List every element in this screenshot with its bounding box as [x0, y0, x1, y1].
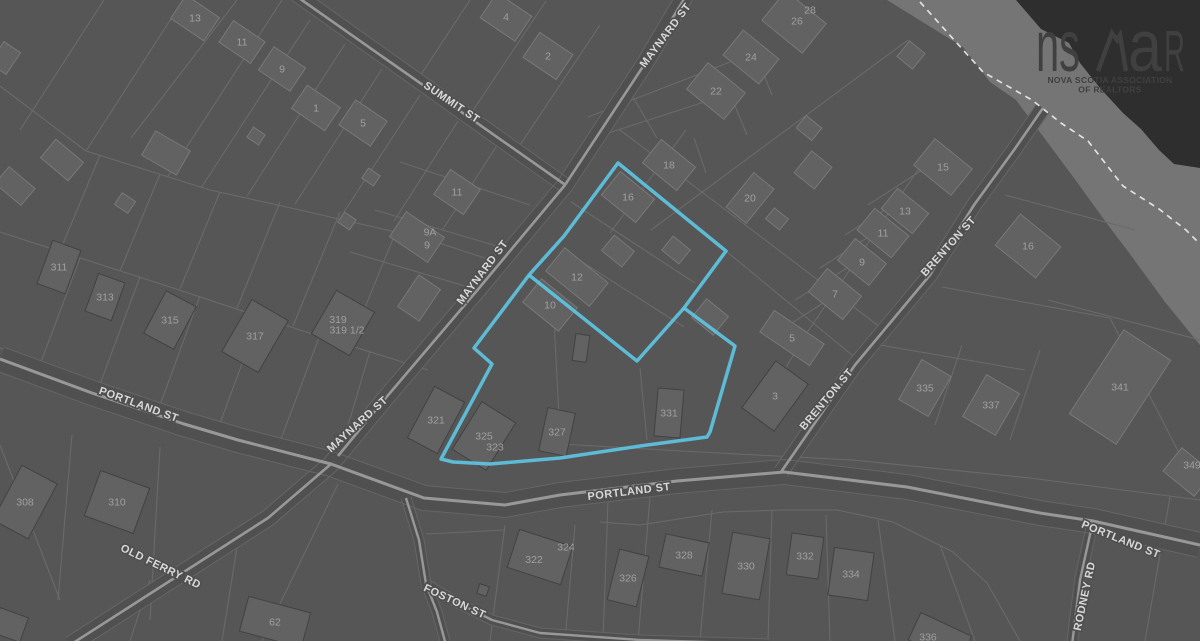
svg-text:9A: 9A — [424, 227, 437, 239]
svg-text:11: 11 — [237, 37, 248, 49]
svg-text:20: 20 — [744, 193, 756, 205]
svg-text:9: 9 — [859, 257, 865, 269]
svg-text:335: 335 — [916, 383, 934, 395]
svg-text:16: 16 — [622, 192, 634, 204]
svg-text:326: 326 — [619, 573, 637, 585]
svg-text:62: 62 — [269, 617, 281, 629]
svg-text:12: 12 — [571, 272, 583, 284]
svg-text:5: 5 — [360, 118, 366, 130]
svg-text:330: 330 — [737, 561, 755, 573]
svg-text:322: 322 — [525, 554, 543, 566]
svg-text:336: 336 — [919, 632, 937, 641]
svg-text:311: 311 — [51, 262, 68, 274]
svg-text:15: 15 — [937, 162, 949, 174]
svg-text:18: 18 — [663, 160, 675, 172]
svg-text:328: 328 — [675, 550, 693, 562]
svg-text:327: 327 — [548, 427, 566, 439]
svg-text:7: 7 — [832, 289, 838, 301]
svg-text:321: 321 — [427, 415, 445, 427]
svg-text:341: 341 — [1111, 382, 1129, 394]
svg-text:308: 308 — [16, 497, 34, 509]
svg-text:334: 334 — [842, 569, 860, 581]
svg-text:324: 324 — [557, 542, 575, 554]
svg-text:24: 24 — [745, 52, 757, 64]
svg-text:315: 315 — [161, 315, 179, 327]
svg-text:319 1/2: 319 1/2 — [329, 325, 364, 337]
svg-text:5: 5 — [789, 333, 795, 345]
svg-text:13: 13 — [899, 206, 911, 218]
svg-text:4: 4 — [503, 12, 509, 24]
svg-text:11: 11 — [878, 228, 889, 240]
svg-text:349: 349 — [1183, 460, 1200, 472]
svg-text:1: 1 — [313, 103, 319, 115]
svg-text:10: 10 — [544, 300, 556, 312]
svg-text:16: 16 — [1022, 241, 1034, 253]
svg-text:9: 9 — [424, 240, 430, 252]
svg-text:331: 331 — [660, 408, 678, 420]
svg-text:313: 313 — [96, 292, 114, 304]
svg-text:337: 337 — [982, 400, 1000, 412]
svg-text:NOVA SCOTIA ASSOCIATION: NOVA SCOTIA ASSOCIATION — [1047, 75, 1172, 85]
svg-text:3: 3 — [772, 391, 778, 403]
svg-text:22: 22 — [710, 86, 722, 98]
svg-text:317: 317 — [246, 331, 264, 343]
svg-text:11: 11 — [452, 187, 463, 199]
svg-text:310: 310 — [108, 497, 126, 509]
svg-text:OF REALTORS: OF REALTORS — [1078, 85, 1141, 95]
svg-text:323: 323 — [486, 442, 504, 454]
svg-text:13: 13 — [189, 13, 201, 25]
svg-text:9: 9 — [279, 64, 285, 76]
svg-text:26: 26 — [791, 16, 803, 28]
svg-text:28: 28 — [804, 5, 816, 17]
svg-text:332: 332 — [796, 551, 814, 563]
svg-text:2: 2 — [545, 51, 551, 63]
